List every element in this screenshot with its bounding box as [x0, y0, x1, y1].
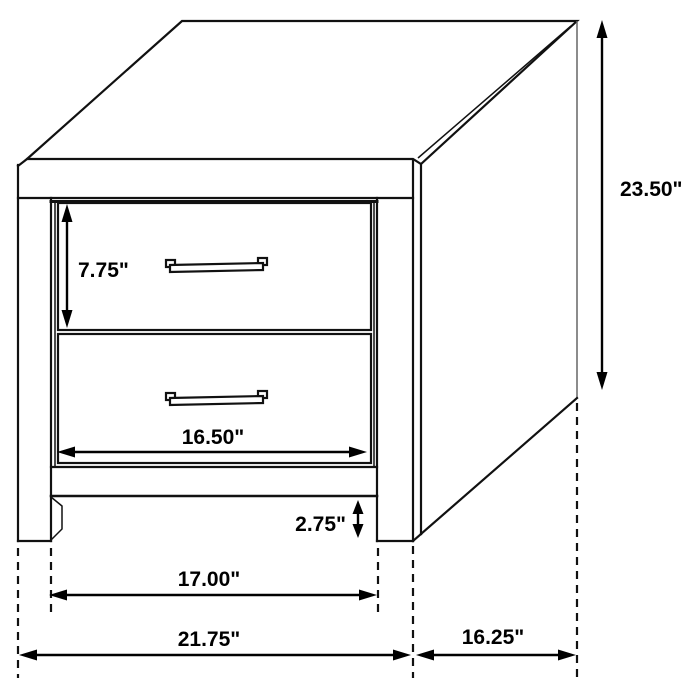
dimension-drawer-height: 7.75" — [62, 204, 129, 328]
arrowhead-right — [393, 650, 411, 661]
dimension-overall-width: 21.75" — [19, 628, 411, 661]
dimension-label-drawer-height: 7.75" — [78, 259, 129, 282]
dimension-label-base-clearance: 2.75" — [295, 513, 346, 536]
drawer-top-handle — [166, 258, 267, 272]
dimension-label-depth: 16.25" — [462, 626, 525, 649]
dimension-drawer-width: 16.50" — [57, 426, 367, 458]
left-leg-inner-face — [51, 497, 62, 540]
arrowhead-down — [353, 524, 364, 538]
arrowhead-up — [353, 500, 364, 514]
handle-bar — [170, 396, 263, 405]
handle-bar — [170, 263, 263, 272]
nightstand-diagram-canvas: 7.75" 23.50" 16.50" 2.75" 17.00" 21.75" — [0, 0, 700, 700]
top-left-bevel — [18, 159, 27, 166]
arrowhead-up — [597, 20, 608, 38]
dimension-label-drawer-width: 16.50" — [182, 426, 245, 449]
dimension-label-inner-width: 17.00" — [178, 568, 241, 591]
dimension-base-clearance: 2.75" — [295, 500, 363, 538]
arrowhead-down — [62, 310, 73, 328]
dimension-depth: 16.25" — [416, 626, 576, 661]
arrowhead-left — [19, 650, 37, 661]
dimension-overall-height: 23.50" — [597, 20, 683, 390]
dimension-label-overall-width: 21.75" — [178, 628, 241, 651]
dimension-inner-width: 17.00" — [49, 568, 377, 601]
side-panel-bottom-edge — [421, 398, 577, 534]
arrowhead-right — [359, 590, 377, 601]
dimension-label-overall-height: 23.50" — [620, 178, 683, 201]
dimension-diagram: 7.75" 23.50" 16.50" 2.75" 17.00" 21.75" — [0, 0, 700, 700]
arrowhead-right — [349, 447, 367, 458]
arrowhead-right — [558, 650, 576, 661]
drawer-bottom-handle — [166, 391, 267, 405]
arrowhead-left — [57, 447, 75, 458]
right-leg-bevel — [413, 534, 421, 541]
arrowhead-left — [416, 650, 434, 661]
arrowhead-down — [597, 372, 608, 390]
arrowhead-up — [62, 204, 73, 222]
